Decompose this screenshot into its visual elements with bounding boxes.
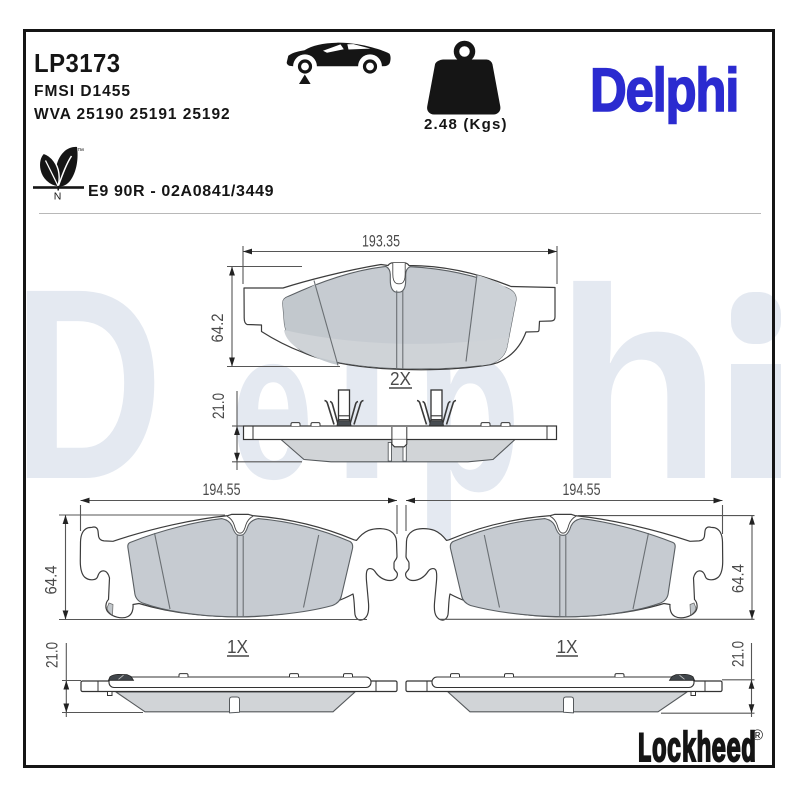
- svg-text:193.35: 193.35: [362, 232, 400, 251]
- svg-text:1X: 1X: [227, 637, 248, 657]
- svg-text:194.55: 194.55: [563, 480, 601, 499]
- svg-text:1X: 1X: [557, 637, 578, 657]
- svg-text:64.2: 64.2: [208, 314, 227, 343]
- svg-text:21.0: 21.0: [729, 641, 748, 667]
- svg-text:2X: 2X: [390, 369, 411, 389]
- svg-text:21.0: 21.0: [43, 642, 62, 668]
- svg-text:64.4: 64.4: [729, 564, 748, 593]
- svg-text:194.55: 194.55: [203, 480, 241, 499]
- svg-text:21.0: 21.0: [209, 393, 228, 419]
- svg-text:64.4: 64.4: [42, 566, 61, 595]
